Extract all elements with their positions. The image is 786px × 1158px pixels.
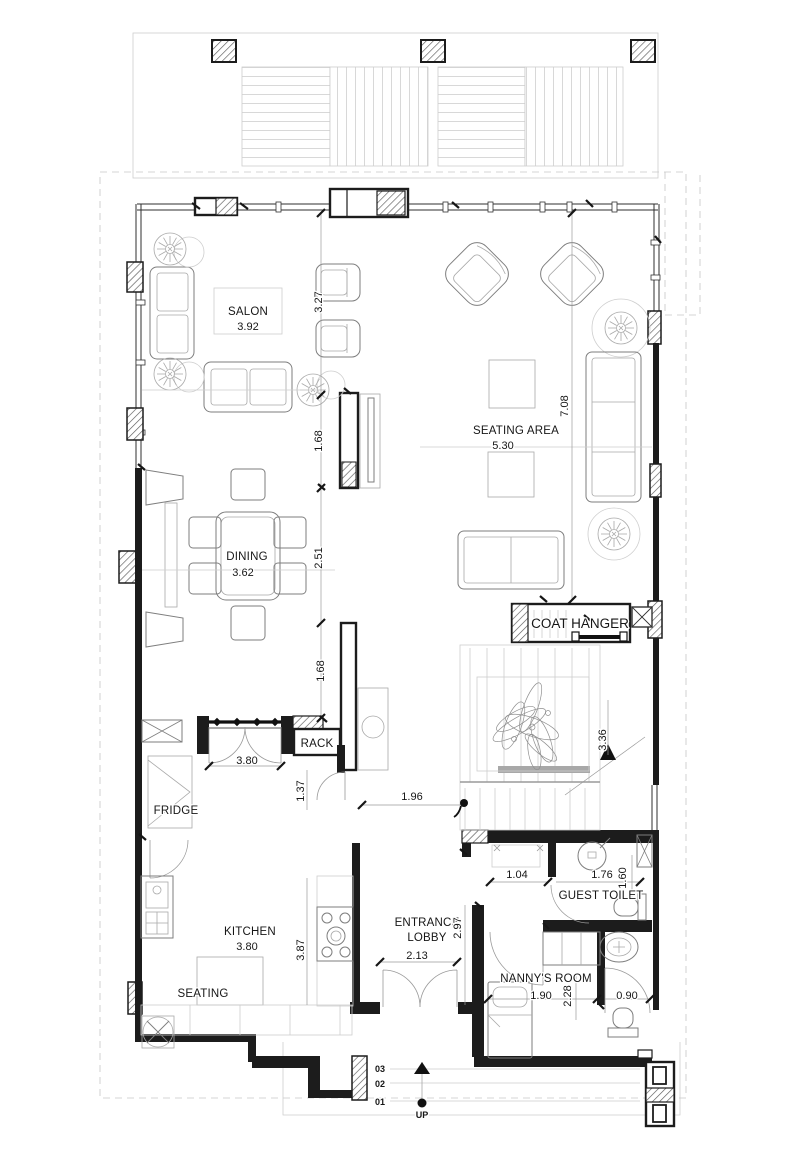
- fridge-cabinet: [142, 720, 182, 742]
- dining-label: DINING: [226, 551, 267, 563]
- exterior-walls: [119, 189, 674, 1126]
- floor-plan-page: SALON 3.92 3.27 1.68 SEATING AREA 5.30 7…: [0, 0, 786, 1158]
- rack-width: 3.80: [236, 755, 257, 767]
- kitchen-depth: 3.87: [295, 939, 307, 960]
- stair-width-dim: 3.36: [597, 729, 609, 750]
- wardrobe: [543, 932, 600, 965]
- sofa: [204, 362, 292, 412]
- staircase: [460, 645, 645, 830]
- fridge-label: FRIDGE: [154, 805, 199, 817]
- hall-door: [317, 772, 345, 800]
- seating-area-depth: 7.08: [559, 395, 571, 416]
- nanny-depth: 2.28: [562, 985, 574, 1006]
- entrance-depth: 2.97: [452, 917, 464, 938]
- wall-column: [650, 464, 661, 497]
- floor-plan-drawing: SALON 3.92 3.27 1.68 SEATING AREA 5.30 7…: [0, 0, 786, 1158]
- fridge: [148, 756, 192, 828]
- vanity: [492, 845, 540, 867]
- bed: [488, 982, 532, 1058]
- guest-toilet-label: GUEST TOILET: [559, 890, 644, 902]
- dining-chair: [231, 469, 265, 500]
- sink-unit: [141, 876, 173, 938]
- plant: [598, 518, 630, 550]
- tv-wall-dim: 1.68: [313, 430, 325, 451]
- up-arrow: [414, 1062, 430, 1074]
- entrance-lobby-label-2: LOBBY: [407, 932, 446, 944]
- fireplace: [330, 189, 408, 217]
- step-label-3: 03: [375, 1064, 385, 1074]
- terrace-column: [421, 40, 445, 62]
- nanny-width: 1.90: [530, 990, 551, 1002]
- stair-treads-upper: [470, 648, 589, 782]
- dining-chair: [274, 563, 306, 594]
- up-label: UP: [416, 1110, 429, 1120]
- coat-hanger-label: COAT HANGER: [531, 616, 629, 631]
- armchair: [316, 320, 360, 357]
- hall-console: [358, 688, 388, 770]
- dining-chair: [231, 606, 265, 640]
- terrace-column: [631, 40, 655, 62]
- toilet-depth-dim: 1.60: [617, 867, 629, 888]
- stair-treads-lower: [465, 788, 585, 830]
- toilet-lobby-dim: 1.04: [506, 869, 527, 881]
- plant: [154, 358, 186, 390]
- sofa: [586, 352, 641, 502]
- sofa: [150, 267, 194, 359]
- kitchen-door: [150, 840, 188, 878]
- deck-panel: [242, 67, 330, 166]
- nannys-room-label: NANNY'S ROOM: [500, 973, 592, 985]
- step-label-1: 01: [375, 1097, 385, 1107]
- plant: [154, 233, 186, 265]
- seating-area-label: SEATING AREA: [473, 425, 559, 437]
- round-table: [142, 1016, 174, 1048]
- labels: SALON 3.92 3.27 1.68 SEATING AREA 5.30 7…: [154, 291, 644, 1120]
- dining-chair: [274, 517, 306, 548]
- hall-passage-dim: 1.37: [295, 780, 307, 801]
- stair-landing-strip: [498, 766, 590, 773]
- tv: [368, 398, 374, 482]
- armchair: [440, 237, 514, 311]
- toilet: [608, 1008, 638, 1037]
- hall-width-dim: 1.96: [401, 791, 422, 803]
- seating-area-width: 5.30: [492, 440, 513, 452]
- deck-panel: [525, 67, 623, 166]
- entrance-double-door: [383, 970, 457, 1007]
- entrance-lobby-label-1: ENTRANCE: [395, 917, 460, 929]
- entrance-width: 2.13: [406, 950, 427, 962]
- salon-depth-upper: 3.27: [313, 291, 325, 312]
- tv-console: [360, 394, 380, 488]
- terrace: [133, 33, 658, 178]
- lounge-chair: [146, 612, 183, 647]
- sofa: [458, 531, 564, 589]
- dining-depth: 2.51: [313, 547, 325, 568]
- side-table: [488, 452, 534, 497]
- tv-partition: [340, 393, 380, 488]
- kitchen-label: KITCHEN: [224, 926, 276, 938]
- toilet-width-dim: 1.76: [591, 869, 612, 881]
- plant: [605, 312, 637, 344]
- side-table: [489, 360, 535, 408]
- sliding-door: [209, 718, 281, 728]
- bowl: [362, 716, 384, 738]
- deck-panel: [438, 67, 525, 166]
- kitchen-furniture: [141, 720, 353, 1048]
- kitchen-seating-label: SEATING: [177, 988, 228, 1000]
- salon-width: 3.92: [237, 321, 258, 333]
- wall-column: [127, 262, 143, 292]
- step-label-2: 02: [375, 1079, 385, 1089]
- seating-area-furniture: [440, 237, 650, 589]
- salon-label: SALON: [228, 306, 268, 318]
- wall-column: [127, 408, 143, 440]
- stove: [317, 907, 353, 961]
- entrance-steps: [390, 1062, 640, 1108]
- sideboard: [165, 503, 177, 607]
- kitchen-width: 3.80: [236, 941, 257, 953]
- property-boundary: [100, 172, 700, 1115]
- deck-panel: [330, 67, 428, 166]
- nanny-bath-door-dim: 0.90: [616, 990, 637, 1002]
- lounge-chair: [146, 470, 183, 505]
- rack-label: RACK: [301, 738, 334, 750]
- lower-wall-dim: 1.68: [315, 660, 327, 681]
- stair-planter: [489, 681, 561, 771]
- terrace-column: [212, 40, 236, 62]
- wash-basin: [600, 932, 638, 962]
- porch-pier: [352, 1056, 367, 1100]
- start-dot: [418, 1099, 427, 1108]
- dining-width: 3.62: [232, 567, 253, 579]
